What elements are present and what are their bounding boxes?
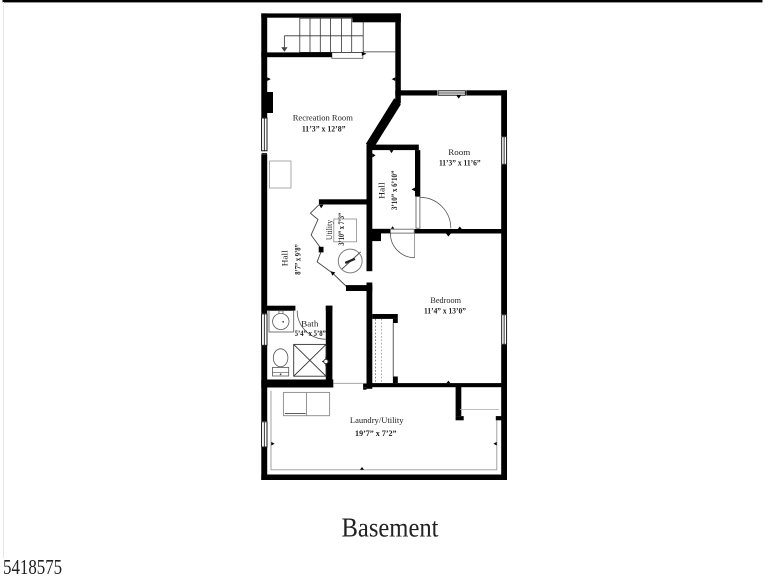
svg-text:3’10” x 6’10”: 3’10” x 6’10” [389,171,399,211]
svg-text:3’10” x 7’3”: 3’10” x 7’3” [336,213,346,246]
svg-text:Room: Room [448,147,470,157]
svg-text:Bath: Bath [301,318,319,328]
svg-text:Laundry/Utility: Laundry/Utility [350,415,404,425]
svg-text:Utility: Utility [324,219,334,240]
svg-text:5418575: 5418575 [3,556,62,577]
svg-text:5’4” x 5’8”: 5’4” x 5’8” [295,328,326,338]
svg-text:11’3” x 11’6”: 11’3” x 11’6” [439,157,481,167]
svg-text:Basement: Basement [342,513,439,543]
svg-text:11’3” x 12’8”: 11’3” x 12’8” [302,123,346,133]
svg-text:11’4” x 13’0”: 11’4” x 13’0” [424,306,466,316]
svg-text:19’7” x 7’2”: 19’7” x 7’2” [355,428,397,438]
svg-text:Hall: Hall [280,250,290,267]
svg-text:8’7” x 9’8”: 8’7” x 9’8” [292,244,302,275]
svg-text:Hall: Hall [377,182,387,199]
svg-text:Bedroom: Bedroom [430,295,461,305]
svg-text:Recreation Room: Recreation Room [293,112,353,122]
